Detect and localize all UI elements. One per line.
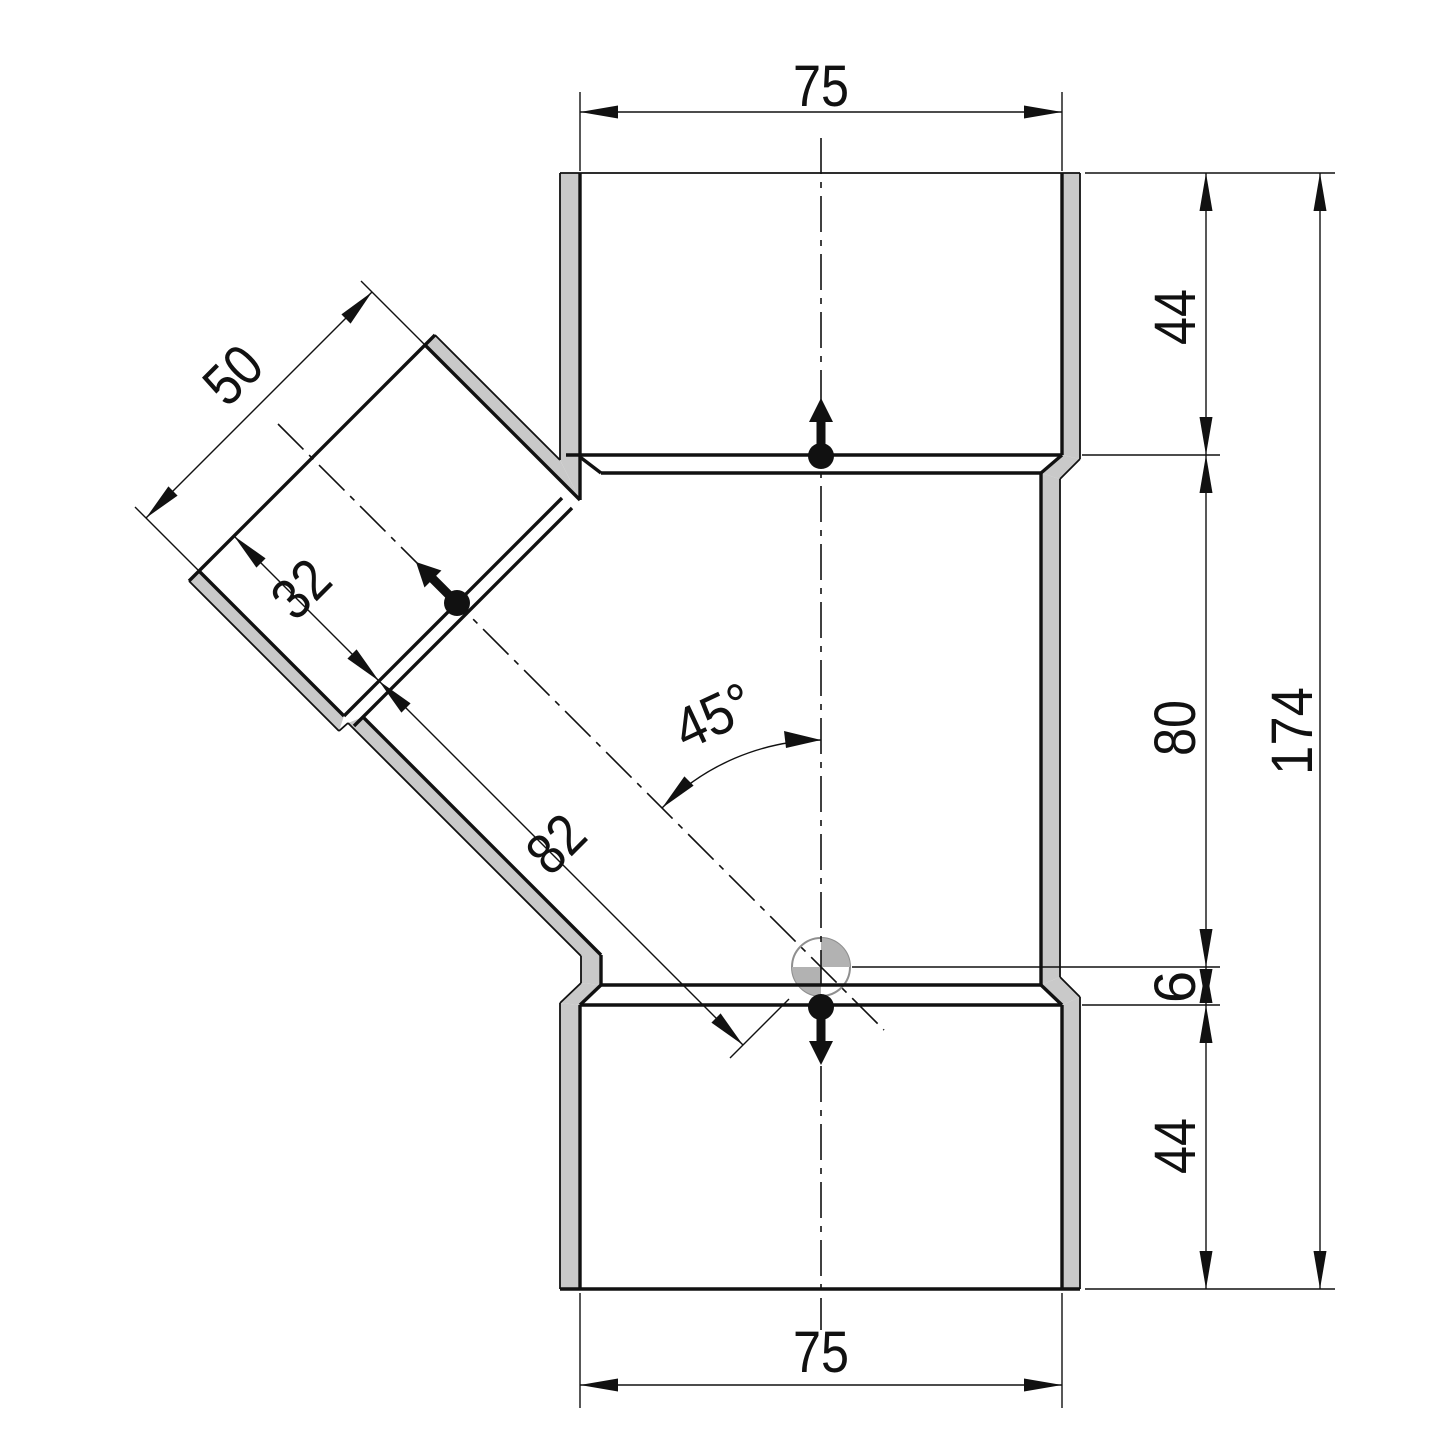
arrow xyxy=(1200,1005,1213,1043)
top-shoulder-chamfer-left xyxy=(580,457,601,473)
arrow xyxy=(1200,173,1213,211)
ext-branch-axis-center xyxy=(730,999,789,1058)
wall-right-mid xyxy=(1041,473,1060,985)
dim-top-socket-depth-label: 44 xyxy=(1143,289,1208,345)
ext-branch-mouth-upper xyxy=(361,281,425,345)
arrow xyxy=(1200,929,1213,967)
dim-overall-height-label: 174 xyxy=(1260,687,1325,775)
arrow xyxy=(1200,455,1213,493)
arrow xyxy=(347,649,379,681)
flow-marker-top xyxy=(808,398,834,469)
arrow xyxy=(234,536,266,568)
wall-bottom-left xyxy=(560,1003,580,1289)
center-symbol-quadrant-ne xyxy=(821,938,850,967)
wall-bottom-right xyxy=(1062,997,1080,1289)
arrow xyxy=(1314,1251,1327,1289)
center-symbol-quadrant-sw xyxy=(792,967,821,996)
flow-marker-stem xyxy=(817,420,826,444)
dim-top-width-label: 75 xyxy=(793,54,849,119)
arrow xyxy=(146,486,178,518)
dim-branch-socket-depth-label: 32 xyxy=(258,546,344,632)
dim-center-gap-label: 6 xyxy=(1143,971,1208,1003)
branch-outer-upper xyxy=(435,335,560,460)
dim-shoulder-to-center-label: 80 xyxy=(1143,700,1208,756)
flow-markers xyxy=(407,398,834,1065)
branch-bore-step-line xyxy=(354,508,572,726)
arrow xyxy=(1314,173,1327,211)
ext-branch-mouth-lower xyxy=(135,507,199,571)
flow-marker-bottom xyxy=(808,994,834,1065)
arrow xyxy=(784,731,821,748)
arrow xyxy=(1024,106,1062,119)
dim-branch-angle-label: 45° xyxy=(664,670,764,763)
arrow xyxy=(662,776,694,808)
arrow xyxy=(1200,417,1213,455)
wall-left-chamfer-bottom xyxy=(560,983,601,1005)
flow-marker-head xyxy=(809,1041,833,1065)
dim-bottom-width-label: 75 xyxy=(793,1320,849,1385)
arrow xyxy=(341,292,372,324)
flow-marker-dot xyxy=(808,443,834,469)
arrow xyxy=(580,106,618,119)
dim-branch-length-label: 82 xyxy=(513,801,599,887)
dim-bottom-socket-depth-label: 44 xyxy=(1143,1118,1208,1174)
arrow xyxy=(711,1013,743,1045)
flow-marker-branch xyxy=(407,553,476,622)
flow-marker-stem xyxy=(817,1019,826,1043)
wall-top-left xyxy=(560,173,580,500)
arrow xyxy=(580,1379,618,1392)
arrow xyxy=(1024,1379,1062,1392)
technical-drawing-page: 75 75 44 80 6 44 174 50 32 82 45° xyxy=(0,0,1445,1445)
arrow xyxy=(1200,1251,1213,1289)
drawing-canvas: 75 75 44 80 6 44 174 50 32 82 45° xyxy=(0,0,1445,1445)
wall-top-right xyxy=(1062,173,1080,459)
branch-inner-upper xyxy=(425,345,580,500)
flow-marker-dot xyxy=(808,994,834,1020)
flow-marker-head xyxy=(809,398,833,422)
dim-branch-width-label: 50 xyxy=(190,332,276,418)
